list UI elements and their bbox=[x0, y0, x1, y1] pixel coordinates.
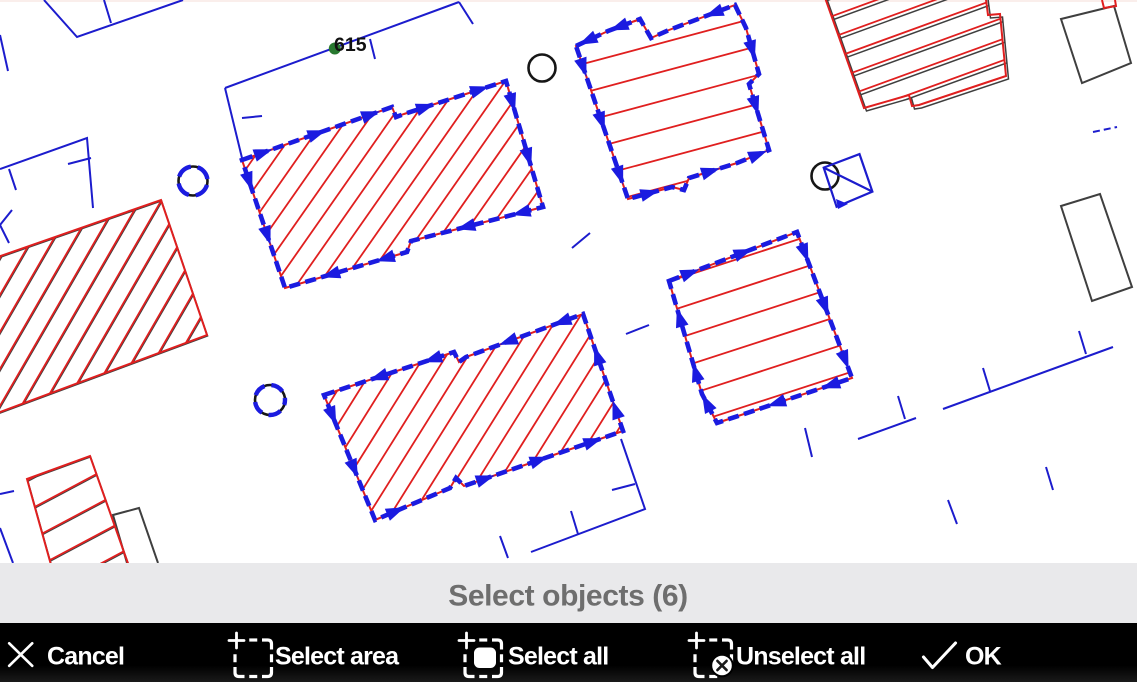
svg-text:Select all: Select all bbox=[508, 643, 608, 671]
svg-text:615: 615 bbox=[334, 34, 367, 56]
svg-text:Cancel: Cancel bbox=[47, 643, 124, 671]
svg-text:OK: OK bbox=[965, 643, 1002, 671]
svg-text:Unselect all: Unselect all bbox=[736, 643, 865, 671]
svg-text:Select objects (6): Select objects (6) bbox=[448, 579, 688, 612]
svg-text:Select area: Select area bbox=[275, 643, 400, 671]
